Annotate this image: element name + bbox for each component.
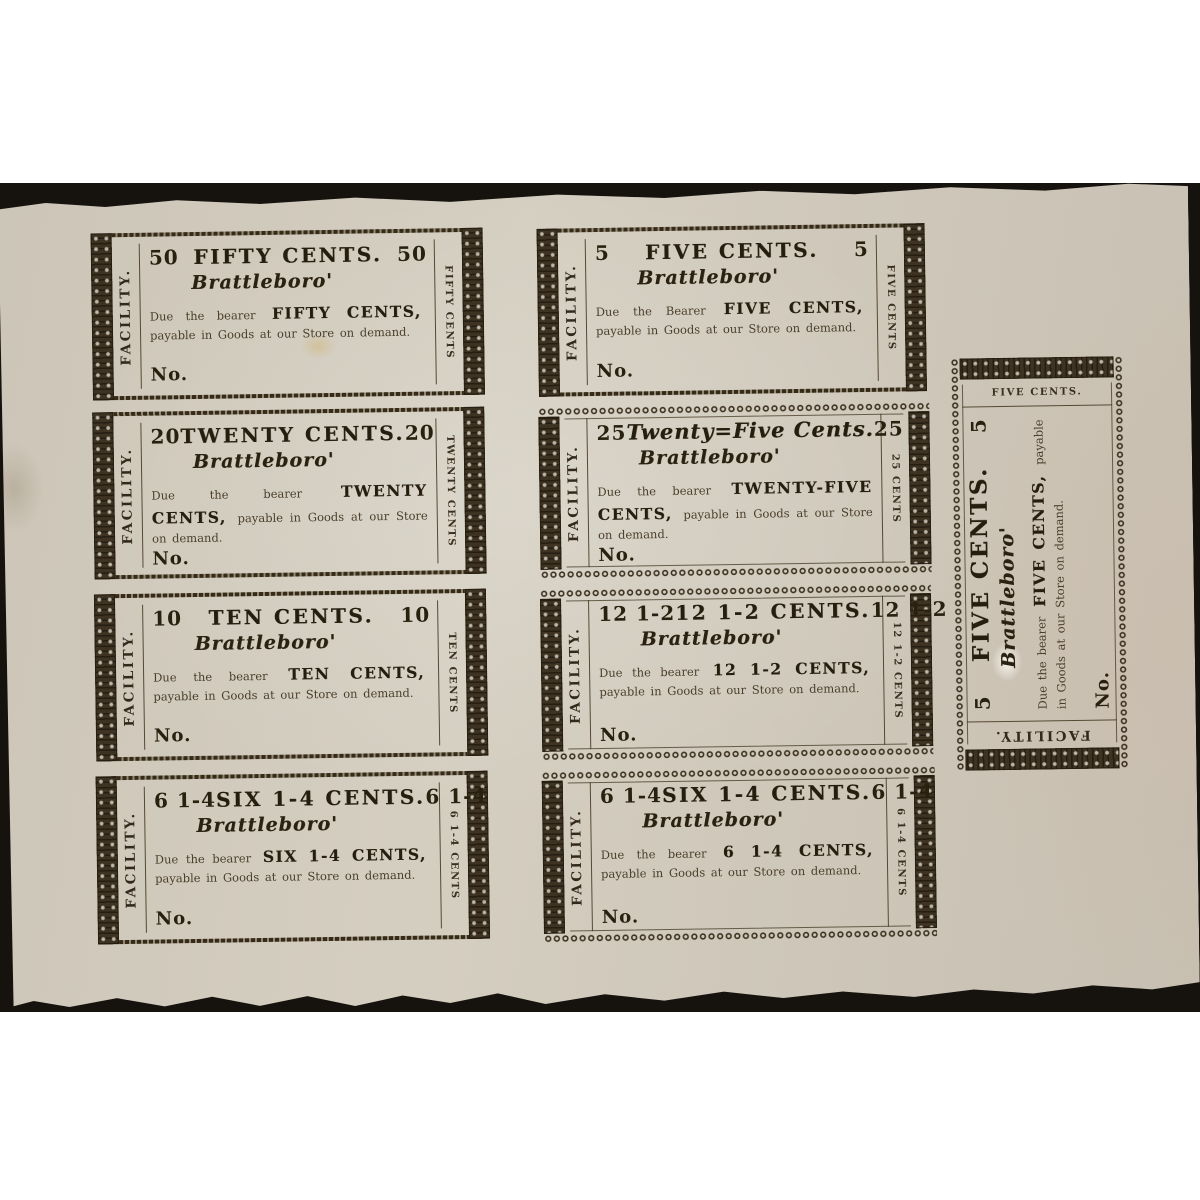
note-bottom-border	[119, 935, 469, 944]
due-prefix: Due the bearer	[150, 308, 256, 324]
note-header: 25 Twenty=Five Cents. 25	[596, 416, 873, 445]
corner-denomination-right: 12 1-2	[870, 597, 947, 622]
corner-denomination-right: 5	[854, 237, 869, 261]
facility-vertical-label: FACILITY.	[122, 811, 139, 909]
inner-rule-left	[585, 239, 588, 385]
issuer-city: Brattleboro'	[642, 807, 879, 833]
note-header: 5 FIVE CENTS. 5	[595, 237, 869, 265]
serial-number-label: No.	[600, 721, 877, 746]
corner-denomination-left: 5	[971, 695, 995, 710]
inner-rule-left	[588, 600, 591, 749]
serial-number-label: No.	[596, 357, 870, 382]
note-title: 12 1-2 CENTS.	[675, 598, 871, 625]
corner-denomination-left: 25	[596, 421, 626, 445]
denomination-vertical-label: 12 1-2 CENTS	[891, 621, 903, 719]
note-header: 6 1-4 SIX 1-4 CENTS. 6 1-4	[154, 785, 432, 813]
ornament-strip-left	[94, 594, 117, 761]
corner-denomination-left: 6 1-4	[600, 783, 662, 808]
obligation-text: Due the bearer 12 1-2 CENTS, payable in …	[599, 656, 877, 702]
corner-denomination-right: 6 1-4	[871, 779, 933, 804]
denomination-vertical-label: 6 1-4 CENTS	[448, 811, 460, 900]
ornament-strip-right	[903, 223, 926, 391]
due-suffix: payable in Goods at our Store on demand.	[601, 863, 861, 881]
scrip-note-six-quarter-cents-right: FACILITY. 6 1-4 CENTS 6 1-4 SIX 1-4 CENT…	[542, 766, 937, 943]
ornament-strip-left	[540, 599, 563, 752]
due-prefix: Due the bearer	[597, 483, 711, 499]
facility-vertical-label: FACILITY.	[117, 268, 134, 366]
note-header: 10 TEN CENTS. 10	[152, 603, 430, 631]
denomination-vertical-label: TWENTY CENTS	[444, 435, 457, 547]
corner-denomination-left: 10	[152, 606, 182, 630]
issuer-city: Brattleboro'	[191, 269, 427, 294]
facility-vertical-label: FACILITY.	[565, 444, 582, 542]
inner-rule-left	[142, 605, 145, 750]
scrip-note-five-cents: FACILITY. FIVE CENTS 5 FIVE CENTS. 5 Bra…	[537, 223, 927, 397]
corner-denomination-left: 5	[595, 241, 610, 265]
note-body: 20 TWENTY CENTS. 20 Brattleboro' Due the…	[150, 416, 430, 571]
scrip-note-twenty-five-cents: FACILITY. 25 CENTS 25 Twenty=Five Cents.…	[538, 402, 931, 579]
inner-rule-left	[139, 244, 142, 389]
note-title: TWENTY CENTS.	[180, 421, 405, 448]
scrip-note-twelve-and-half-cents: FACILITY. 12 1-2 CENTS 12 1-2 12 1-2 CEN…	[540, 584, 933, 761]
inner-rule-right	[437, 600, 440, 745]
note-body: 6 1-4 SIX 1-4 CENTS. 6 1-4 Brattleboro' …	[600, 775, 881, 934]
note-title: FIVE CENTS.	[610, 237, 854, 265]
corner-denomination-right: 10	[400, 603, 430, 627]
issuer-city: Brattleboro'	[639, 444, 874, 469]
due-suffix: payable in Goods at our Store on demand.	[596, 320, 856, 338]
due-prefix: Due the bearer	[601, 846, 707, 862]
amount-bold: 12 1-2 CENTS,	[713, 658, 871, 679]
note-title: FIFTY CENTS.	[179, 242, 398, 269]
denomination-vertical-label: TEN CENTS	[446, 632, 458, 714]
due-prefix: Due the bearer	[1034, 617, 1049, 710]
due-suffix: payable in Goods at our Store on demand.	[155, 868, 415, 886]
ornament-strip-left	[537, 229, 560, 397]
scrip-note-six-quarter-cents-left: FACILITY. 6 1-4 CENTS 6 1-4 SIX 1-4 CENT…	[96, 771, 490, 945]
ornament-strip-left	[965, 747, 1119, 770]
note-title: SIX 1-4 CENTS.	[216, 785, 426, 812]
obligation-text: Due the bearer FIVE CENTS, payable in Go…	[1025, 417, 1071, 710]
due-suffix: payable in Goods at our Store on demand.	[150, 325, 410, 343]
note-header: 12 1-2 12 1-2 CENTS. 12 1-2	[598, 598, 875, 626]
serial-number-label: No.	[151, 361, 429, 386]
due-prefix: Due the bearer	[151, 486, 302, 502]
inner-rule-left	[590, 782, 593, 931]
due-prefix: Due the Bearer	[596, 303, 706, 319]
issuer-city: Brattleboro'	[640, 625, 875, 650]
corner-denomination-left: 12 1-2	[598, 601, 675, 626]
note-header: 50 FIFTY CENTS. 50	[149, 242, 427, 270]
serial-number-label: No.	[156, 904, 434, 929]
due-prefix: Due the bearer	[155, 851, 252, 866]
note-body: 50 FIFTY CENTS. 50 Brattleboro' Due the …	[149, 237, 429, 392]
obligation-text: Due the Bearer FIVE CENTS, payable in Go…	[596, 295, 871, 341]
scrip-sheet-paper: FACILITY. FIFTY CENTS 50 FIFTY CENTS. 50…	[0, 181, 1200, 1013]
ornament-strip-right	[465, 589, 488, 756]
issuer-city: Brattleboro'	[194, 630, 430, 655]
inner-rule-left	[140, 423, 143, 568]
serial-number-label: No.	[152, 544, 430, 569]
ornament-strip-left	[91, 233, 114, 400]
note-header: 6 1-4 SIX 1-4 CENTS. 6 1-4	[600, 780, 879, 808]
serial-number-label: No.	[598, 541, 875, 566]
denomination-vertical-label: FIFTY CENTS	[443, 265, 455, 359]
obligation-text: Due the bearer SIX 1-4 CENTS, payable in…	[155, 842, 434, 888]
serial-number-label: No.	[1088, 416, 1113, 708]
amount-bold: SIX 1-4 CENTS,	[263, 845, 427, 866]
denomination-vertical-label: FIVE CENTS	[885, 265, 897, 351]
obligation-text: Due the bearer 6 1-4 CENTS, payable in G…	[601, 838, 881, 884]
corner-denomination-right: 50	[397, 242, 427, 266]
note-bottom-border	[560, 387, 906, 396]
note-body: 6 1-4 SIX 1-4 CENTS. 6 1-4 Brattleboro' …	[154, 780, 434, 936]
note-title: FIVE CENTS.	[965, 433, 996, 696]
note-bottom-border	[117, 752, 467, 761]
note-title: SIX 1-4 CENTS.	[662, 780, 872, 807]
note-title: TEN CENTS.	[182, 603, 401, 630]
facility-vertical-label: FACILITY.	[119, 447, 136, 545]
issuer-city: Brattleboro'	[196, 811, 432, 836]
ornament-strip-right	[462, 228, 485, 395]
amount-bold: FIVE CENTS,	[723, 297, 863, 318]
amount-bold: FIFTY CENTS,	[272, 302, 422, 323]
note-header: 5 FIVE CENTS. 5	[964, 418, 995, 710]
photo-stage: FACILITY. FIFTY CENTS 50 FIFTY CENTS. 50…	[0, 0, 1200, 1200]
ornament-strip-left	[96, 776, 119, 944]
corner-denomination-left: 50	[149, 245, 179, 269]
inner-rule-right	[434, 239, 437, 384]
inner-rule-right	[962, 404, 1112, 407]
corner-denomination-right: 20	[405, 420, 435, 444]
facility-vertical-label: FACILITY.	[568, 808, 585, 906]
note-header: 20 TWENTY CENTS. 20	[150, 421, 428, 449]
note-bottom-border	[114, 391, 464, 400]
denomination-vertical-label: 25 CENTS	[889, 453, 901, 523]
serial-number-label: No.	[602, 903, 881, 928]
note-body: 10 TEN CENTS. 10 Brattleboro' Due the be…	[152, 598, 432, 753]
facility-vertical-label: FACILITY.	[566, 626, 583, 724]
ornament-strip-left	[538, 417, 561, 570]
scrip-note-ten-cents: FACILITY. TEN CENTS 10 TEN CENTS. 10 Bra…	[94, 589, 488, 762]
scrip-note-five-cents-rotated: FACILITY. FIVE CENTS. 5 FIVE CENTS. 5 Br…	[951, 356, 1129, 771]
corner-denomination-left: 6 1-4	[154, 788, 216, 813]
facility-vertical-label: FACILITY.	[563, 264, 580, 362]
inner-rule-left	[967, 719, 1117, 722]
facility-vertical-label: FACILITY.	[120, 629, 137, 727]
corner-denomination-left: 20	[150, 424, 180, 448]
facility-vertical-label: FACILITY.	[993, 727, 1091, 744]
corner-denomination-right: 25	[874, 416, 904, 440]
inner-rule-left	[586, 418, 589, 567]
due-suffix: payable in Goods at our Store on demand.	[599, 681, 859, 699]
inner-rule-left	[144, 787, 147, 933]
amount-bold: 6 1-4 CENTS,	[723, 840, 874, 861]
issuer-city: Brattleboro'	[637, 264, 869, 289]
denomination-vertical-label: FIVE CENTS.	[992, 386, 1083, 398]
note-body: 12 1-2 12 1-2 CENTS. 12 1-2 Brattleboro'…	[598, 593, 877, 752]
ornament-strip-left	[92, 412, 115, 579]
obligation-text: Due the bearer TEN CENTS, payable in Goo…	[153, 661, 432, 707]
due-prefix: Due the bearer	[599, 665, 699, 680]
due-suffix: payable in Goods at our Store on demand.	[153, 686, 413, 704]
ornament-strip-right	[908, 411, 931, 564]
issuer-city: Brattleboro'	[994, 418, 1020, 668]
ornament-strip-right	[463, 407, 486, 574]
note-body: 5 FIVE CENTS. 5 Brattleboro' Due the Bea…	[595, 232, 871, 388]
denomination-vertical-label: 6 1-4 CENTS	[895, 807, 907, 896]
ornament-strip-left	[542, 781, 565, 934]
corner-denomination-right: 6 1-4	[425, 784, 487, 809]
amount-bold: FIVE CENTS,	[1028, 475, 1049, 607]
issuer-city: Brattleboro'	[193, 448, 429, 473]
obligation-text: Due the bearer TWENTY-FIVE CENTS, payabl…	[597, 475, 875, 545]
inner-rule-right	[876, 235, 879, 381]
amount-bold: TEN CENTS,	[288, 663, 425, 684]
corner-denomination-right: 5	[966, 418, 990, 433]
note-bottom-border	[116, 570, 466, 579]
scrip-note-fifty-cents: FACILITY. FIFTY CENTS 50 FIFTY CENTS. 50…	[91, 228, 485, 401]
note-title: Twenty=Five Cents.	[626, 416, 874, 445]
due-prefix: Due the bearer	[153, 669, 268, 685]
note-body: 25 Twenty=Five Cents. 25 Brattleboro' Du…	[596, 411, 875, 570]
inner-rule-right	[435, 418, 438, 563]
obligation-text: Due the bearer TWENTY CENTS, payable in …	[151, 479, 430, 549]
ornament-strip-right	[960, 356, 1114, 379]
note-body: 5 FIVE CENTS. 5 Brattleboro' Due the bea…	[959, 416, 1119, 710]
obligation-text: Due the bearer FIFTY CENTS, payable in G…	[150, 300, 429, 346]
serial-number-label: No.	[154, 721, 432, 746]
scrip-note-twenty-cents: FACILITY. TWENTY CENTS 20 TWENTY CENTS. …	[92, 407, 486, 580]
